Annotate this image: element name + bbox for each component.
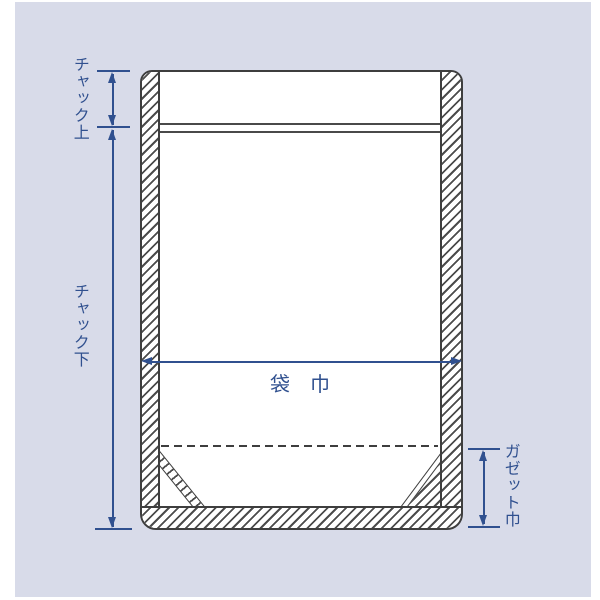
left-seal-hatch: [142, 72, 160, 528]
arrowhead-down-chuck-top: [108, 115, 116, 126]
dim-tick-gusset-bottom: [468, 526, 500, 528]
arrowhead-up-chuck-bottom: [108, 129, 116, 140]
bottom-seal-hatch: [142, 506, 461, 528]
diagram-canvas: チャック上 チャック下 袋 巾 ガゼット巾: [0, 0, 600, 600]
pouch-scene: チャック上 チャック下 袋 巾 ガゼット巾: [0, 0, 600, 600]
arrowhead-down-chuck-bottom: [108, 517, 116, 528]
dim-line-chuck-bottom: [112, 130, 114, 527]
label-gusset-width: ガゼット巾: [502, 443, 519, 528]
arrowhead-down-gusset: [479, 515, 487, 526]
gusset-fold-dashed-line: [161, 445, 438, 447]
dim-line-bag-width: [146, 361, 457, 363]
arrowhead-up-gusset: [479, 450, 487, 461]
arrowhead-left-bag-width: [141, 357, 152, 365]
dim-tick-pouch-bottom: [95, 528, 132, 530]
label-bag-width: 袋 巾: [270, 368, 330, 397]
dim-line-gusset-width: [483, 452, 485, 524]
zipper-line-bottom: [160, 131, 440, 133]
dim-tick-zipper: [97, 126, 130, 128]
arrowhead-up-chuck-top: [108, 72, 116, 83]
arrowhead-right-bag-width: [451, 357, 462, 365]
label-chuck-top: チャック上: [71, 56, 88, 141]
pouch-outline: [140, 70, 463, 530]
right-seal-hatch: [440, 72, 461, 528]
zipper-line-top: [160, 123, 440, 125]
label-chuck-bottom: チャック下: [71, 283, 88, 368]
